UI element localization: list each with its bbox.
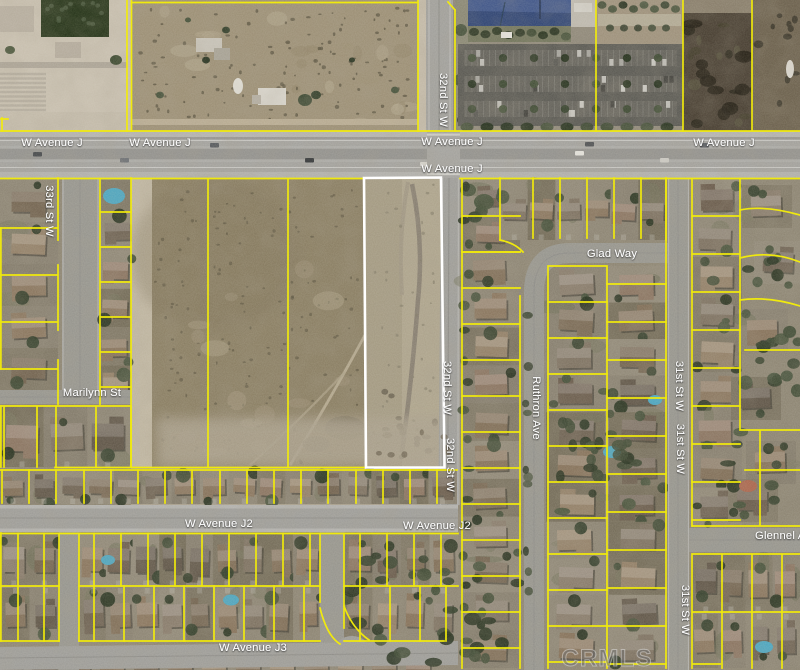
svg-text:W Avenue J: W Avenue J [21, 137, 83, 149]
svg-text:W Avenue J: W Avenue J [129, 137, 191, 149]
svg-text:Marilynn St: Marilynn St [63, 387, 122, 399]
svg-text:W Avenue J: W Avenue J [421, 163, 483, 175]
svg-text:W Avenue J: W Avenue J [421, 136, 483, 148]
svg-text:W Avenue J3: W Avenue J3 [219, 642, 287, 654]
svg-text:W Avenue J2: W Avenue J2 [185, 518, 253, 530]
svg-text:33rd St W: 33rd St W [43, 185, 55, 237]
svg-text:W Avenue J: W Avenue J [693, 137, 755, 149]
svg-text:32nd St W: 32nd St W [437, 73, 449, 127]
svg-text:Ruthron Ave: Ruthron Ave [530, 376, 542, 440]
svg-text:Glad Way: Glad Way [587, 248, 638, 260]
svg-text:32nd St W: 32nd St W [444, 438, 456, 492]
svg-text:32nd St W: 32nd St W [441, 361, 453, 415]
svg-text:W Avenue J2: W Avenue J2 [403, 520, 471, 532]
svg-text:Glennel Av: Glennel Av [755, 530, 800, 542]
svg-text:31st St W: 31st St W [679, 585, 691, 636]
svg-text:CRMLS: CRMLS [561, 645, 652, 670]
svg-text:31st St W: 31st St W [674, 424, 686, 475]
svg-text:31st St W: 31st St W [673, 361, 685, 412]
